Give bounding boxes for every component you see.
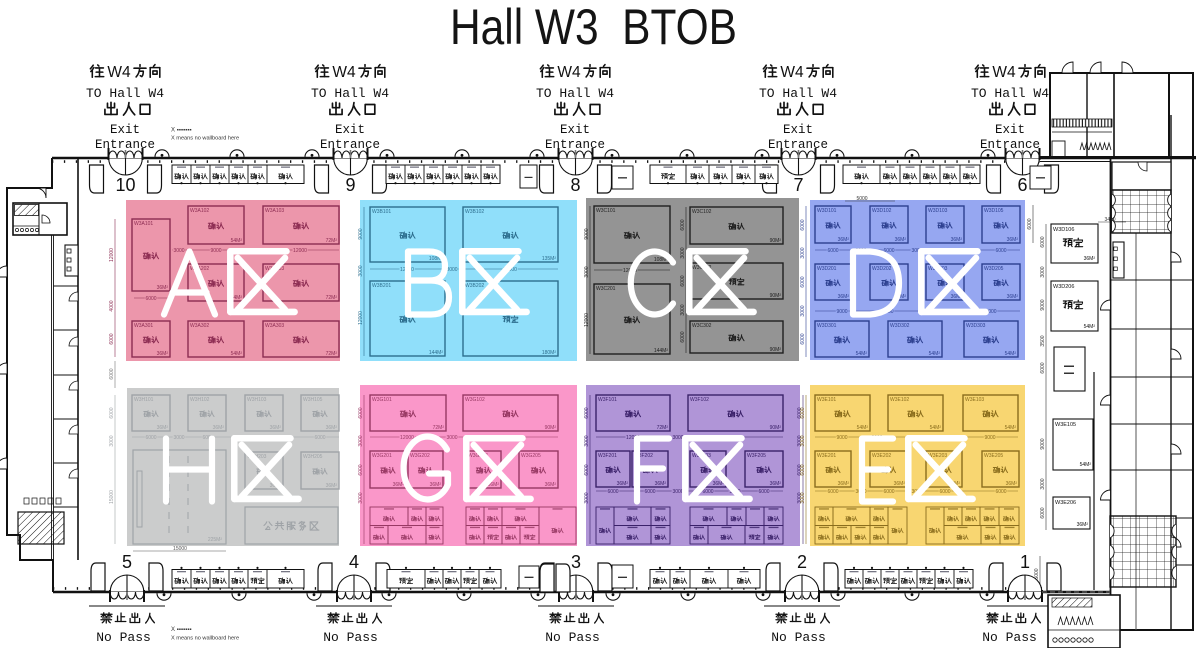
- svg-text:6000: 6000: [584, 407, 590, 418]
- svg-text:36M²: 36M²: [1007, 294, 1019, 300]
- svg-text:36M²: 36M²: [326, 425, 338, 431]
- svg-text:3000: 3000: [1040, 478, 1046, 489]
- svg-text:W3E105: W3E105: [1055, 422, 1076, 428]
- svg-text:6000: 6000: [680, 331, 686, 342]
- svg-text:Exit: Exit: [995, 123, 1025, 137]
- svg-text:TO Hall W4: TO Hall W4: [86, 86, 164, 101]
- svg-text:Entrance: Entrance: [545, 138, 605, 152]
- svg-text:6000: 6000: [883, 489, 894, 495]
- svg-text:X ▪▪▪▪▪▪▪: X ▪▪▪▪▪▪▪: [171, 627, 192, 633]
- svg-text:W3G202: W3G202: [410, 453, 430, 459]
- svg-text:X means no wallboard here: X means no wallboard here: [171, 136, 239, 142]
- svg-text:36M²: 36M²: [1006, 481, 1018, 487]
- svg-text:72M²: 72M²: [657, 425, 669, 431]
- svg-text:W3H101: W3H101: [134, 397, 154, 403]
- svg-text:5000: 5000: [856, 196, 867, 202]
- svg-text:▬▬: ▬▬: [525, 574, 535, 579]
- svg-text:9000: 9000: [1040, 438, 1046, 449]
- svg-text:36M²: 36M²: [1077, 522, 1089, 528]
- svg-text:90M²: 90M²: [770, 347, 782, 353]
- svg-text:36M²: 36M²: [770, 481, 782, 487]
- svg-text:72M²: 72M²: [326, 351, 338, 357]
- svg-text:12000: 12000: [584, 313, 590, 327]
- svg-text:36M²: 36M²: [838, 481, 850, 487]
- svg-text:6000: 6000: [800, 333, 806, 344]
- svg-text:W3C102: W3C102: [692, 209, 712, 215]
- svg-text:3000: 3000: [358, 435, 364, 446]
- svg-text:Exit: Exit: [783, 123, 813, 137]
- svg-text:No Pass: No Pass: [545, 630, 600, 645]
- svg-text:▬▬: ▬▬: [1064, 370, 1074, 376]
- svg-text:W3D303: W3D303: [966, 323, 986, 329]
- svg-text:▬▬: ▬▬: [1036, 175, 1046, 180]
- svg-text:6000: 6000: [109, 407, 115, 418]
- svg-text:225M²: 225M²: [208, 537, 223, 543]
- svg-text:15000: 15000: [109, 490, 115, 504]
- svg-text:3000: 3000: [584, 266, 590, 277]
- svg-text:No Pass: No Pass: [982, 630, 1037, 645]
- svg-text:36M²: 36M²: [895, 237, 907, 243]
- svg-text:36M²: 36M²: [157, 351, 169, 357]
- svg-text:144M²: 144M²: [654, 348, 669, 354]
- svg-text:36M²: 36M²: [655, 481, 667, 487]
- svg-text:15000: 15000: [173, 546, 187, 552]
- svg-text:6000: 6000: [109, 333, 115, 344]
- svg-text:90M²: 90M²: [770, 238, 782, 244]
- svg-text:6000: 6000: [607, 489, 618, 495]
- svg-text:W3B201: W3B201: [372, 283, 391, 289]
- svg-text:54M²: 54M²: [1005, 425, 1017, 431]
- svg-text:6000: 6000: [358, 464, 364, 475]
- svg-text:3000: 3000: [446, 267, 457, 273]
- svg-text:144M²: 144M²: [429, 350, 444, 356]
- svg-text:6000: 6000: [800, 407, 806, 418]
- svg-text:6000: 6000: [584, 464, 590, 475]
- svg-text:6000: 6000: [1040, 236, 1046, 247]
- svg-text:6000: 6000: [800, 276, 806, 287]
- svg-text:36M²: 36M²: [213, 425, 225, 431]
- svg-text:W4: W4: [780, 64, 804, 81]
- svg-text:36M²: 36M²: [326, 483, 338, 489]
- svg-text:W3A302: W3A302: [190, 323, 209, 329]
- svg-text:36M²: 36M²: [1084, 256, 1096, 262]
- svg-text:W3D103: W3D103: [928, 208, 948, 214]
- svg-text:36M²: 36M²: [157, 425, 169, 431]
- svg-text:W3A101: W3A101: [134, 221, 153, 227]
- svg-text:6000: 6000: [800, 464, 806, 475]
- svg-text:6000: 6000: [995, 489, 1006, 495]
- svg-text:36M²: 36M²: [545, 482, 557, 488]
- svg-text:Entrance: Entrance: [320, 138, 380, 152]
- svg-text:X ▪▪▪▪▪▪▪: X ▪▪▪▪▪▪▪: [171, 128, 192, 134]
- svg-text:72M²: 72M²: [433, 425, 445, 431]
- svg-text:W3D105: W3D105: [984, 208, 1004, 214]
- svg-text:3000: 3000: [800, 435, 806, 446]
- svg-text:Entrance: Entrance: [768, 138, 828, 152]
- svg-text:W3A303: W3A303: [265, 323, 284, 329]
- svg-text:36M²: 36M²: [1007, 237, 1019, 243]
- svg-text:W3E103: W3E103: [965, 397, 984, 403]
- svg-text:W3E206: W3E206: [1055, 500, 1076, 506]
- svg-text:W3B102: W3B102: [465, 209, 484, 215]
- svg-text:4: 4: [349, 552, 359, 572]
- svg-text:6000: 6000: [145, 435, 156, 441]
- svg-text:W4: W4: [557, 64, 581, 81]
- svg-text:9000: 9000: [210, 248, 221, 254]
- svg-text:W3D102: W3D102: [872, 208, 892, 214]
- svg-text:3000: 3000: [109, 435, 115, 446]
- svg-text:6000: 6000: [358, 407, 364, 418]
- svg-text:6000: 6000: [827, 248, 838, 254]
- svg-text:9000: 9000: [984, 435, 995, 441]
- svg-text:W3E205: W3E205: [984, 453, 1003, 459]
- svg-text:W3A102: W3A102: [190, 208, 209, 214]
- svg-text:1: 1: [1020, 552, 1030, 572]
- svg-text:W3D106: W3D106: [1053, 227, 1074, 233]
- svg-text:54M²: 54M²: [1080, 462, 1092, 468]
- svg-text:TO Hall W4: TO Hall W4: [311, 86, 389, 101]
- svg-text:W3D101: W3D101: [817, 208, 837, 214]
- svg-text:54M²: 54M²: [231, 351, 243, 357]
- svg-text:W3D205: W3D205: [984, 266, 1004, 272]
- svg-text:No Pass: No Pass: [96, 630, 151, 645]
- svg-text:5: 5: [122, 552, 132, 572]
- svg-text:6000: 6000: [995, 248, 1006, 254]
- svg-text:2: 2: [797, 552, 807, 572]
- svg-text:6000: 6000: [827, 489, 838, 495]
- svg-text:9: 9: [345, 175, 355, 195]
- svg-text:7: 7: [793, 175, 803, 195]
- svg-text:W3D206: W3D206: [1053, 284, 1074, 290]
- svg-text:W3E102: W3E102: [890, 397, 909, 403]
- svg-text:W3B101: W3B101: [372, 209, 391, 215]
- svg-text:No Pass: No Pass: [771, 630, 826, 645]
- svg-text:TO Hall W4: TO Hall W4: [759, 86, 837, 101]
- svg-text:TO Hall W4: TO Hall W4: [536, 86, 614, 101]
- svg-text:9000: 9000: [836, 309, 847, 315]
- svg-text:W3H105: W3H105: [303, 397, 323, 403]
- svg-text:W3E101: W3E101: [817, 397, 836, 403]
- svg-text:12000: 12000: [293, 248, 307, 254]
- svg-text:3000: 3000: [800, 305, 806, 316]
- svg-text:W3G102: W3G102: [465, 397, 485, 403]
- svg-text:36M²: 36M²: [894, 481, 906, 487]
- svg-text:12000: 12000: [109, 248, 115, 262]
- svg-text:3000: 3000: [358, 265, 364, 276]
- svg-text:W3F102: W3F102: [690, 397, 709, 403]
- svg-text:4000: 4000: [109, 300, 115, 311]
- svg-text:W3A301: W3A301: [134, 323, 153, 329]
- svg-text:W3H102: W3H102: [190, 397, 210, 403]
- svg-text:36M²: 36M²: [951, 237, 963, 243]
- svg-text:6000: 6000: [1040, 507, 1046, 518]
- svg-text:3000: 3000: [1040, 266, 1046, 277]
- svg-text:W3D301: W3D301: [817, 323, 837, 329]
- svg-text:Exit: Exit: [560, 123, 590, 137]
- svg-text:6000: 6000: [800, 219, 806, 230]
- svg-text:W3A103: W3A103: [265, 208, 284, 214]
- svg-text:W3B202: W3B202: [465, 283, 484, 289]
- svg-text:9000: 9000: [358, 228, 364, 239]
- svg-text:36M²: 36M²: [838, 237, 850, 243]
- svg-text:6: 6: [1017, 175, 1027, 195]
- svg-text:10: 10: [115, 175, 135, 195]
- svg-text:54M²: 54M²: [930, 425, 942, 431]
- svg-text:180M²: 180M²: [542, 350, 557, 356]
- svg-text:X means no wallboard here: X means no wallboard here: [171, 636, 239, 642]
- svg-text:W3C101: W3C101: [596, 208, 616, 214]
- svg-text:6000: 6000: [702, 489, 713, 495]
- svg-text:3: 3: [571, 552, 581, 572]
- svg-text:▬▬: ▬▬: [1064, 363, 1074, 369]
- svg-text:W3H205: W3H205: [303, 454, 323, 460]
- svg-text:Hall W3 BTOB: Hall W3 BTOB: [450, 0, 737, 55]
- svg-text:36M²: 36M²: [617, 481, 629, 487]
- svg-text:9000: 9000: [584, 228, 590, 239]
- svg-text:54M²: 54M²: [231, 238, 243, 244]
- svg-text:72M²: 72M²: [326, 238, 338, 244]
- svg-text:6000: 6000: [758, 489, 769, 495]
- svg-text:W4: W4: [992, 64, 1016, 81]
- svg-text:36M²: 36M²: [270, 425, 282, 431]
- svg-text:3000: 3000: [584, 435, 590, 446]
- svg-text:▬▬: ▬▬: [618, 175, 628, 180]
- svg-text:9000: 9000: [1040, 299, 1046, 310]
- svg-text:W3F101: W3F101: [598, 397, 617, 403]
- svg-text:6000: 6000: [644, 489, 655, 495]
- svg-text:▬▬: ▬▬: [525, 174, 533, 179]
- svg-text:90M²: 90M²: [770, 425, 782, 431]
- svg-text:Exit: Exit: [110, 123, 140, 137]
- svg-text:6000: 6000: [145, 296, 156, 302]
- svg-text:54M²: 54M²: [1005, 351, 1017, 357]
- svg-text:3000: 3000: [800, 492, 806, 503]
- svg-text:90M²: 90M²: [770, 293, 782, 299]
- svg-text:TO Hall W4: TO Hall W4: [971, 86, 1049, 101]
- svg-text:W3C201: W3C201: [596, 286, 616, 292]
- svg-text:W3C302: W3C302: [692, 323, 712, 329]
- svg-text:▬▬: ▬▬: [618, 574, 628, 579]
- svg-text:54M²: 54M²: [929, 351, 941, 357]
- svg-text:W3E201: W3E201: [817, 453, 836, 459]
- svg-text:3000: 3000: [446, 435, 457, 441]
- svg-text:3000: 3000: [680, 247, 686, 258]
- svg-text:Exit: Exit: [335, 123, 365, 137]
- svg-text:6000: 6000: [314, 435, 325, 441]
- svg-text:72M²: 72M²: [326, 295, 338, 301]
- svg-text:90M²: 90M²: [545, 425, 557, 431]
- svg-text:54M²: 54M²: [856, 351, 868, 357]
- svg-text:3000: 3000: [173, 435, 184, 441]
- svg-text:W3F205: W3F205: [747, 453, 766, 459]
- svg-text:W4: W4: [332, 64, 356, 81]
- svg-text:8: 8: [570, 175, 580, 195]
- svg-text:3000: 3000: [173, 248, 184, 254]
- svg-text:6000: 6000: [109, 368, 115, 379]
- svg-text:W4: W4: [107, 64, 131, 81]
- svg-text:9000: 9000: [836, 435, 847, 441]
- svg-text:6000: 6000: [680, 275, 686, 286]
- svg-text:54M²: 54M²: [857, 425, 869, 431]
- svg-text:No Pass: No Pass: [323, 630, 378, 645]
- svg-text:W3G205: W3G205: [521, 453, 541, 459]
- svg-text:W3D202: W3D202: [872, 266, 892, 272]
- svg-text:W3D201: W3D201: [817, 266, 837, 272]
- svg-text:36M²: 36M²: [838, 294, 850, 300]
- svg-text:54M²: 54M²: [1084, 324, 1096, 330]
- svg-text:W3H103: W3H103: [247, 397, 267, 403]
- svg-text:3500: 3500: [1040, 335, 1046, 346]
- svg-text:36M²: 36M²: [393, 482, 405, 488]
- svg-text:3000: 3000: [584, 492, 590, 503]
- svg-text:6000: 6000: [939, 489, 950, 495]
- svg-text:6000: 6000: [1040, 362, 1046, 373]
- svg-text:3000: 3000: [800, 247, 806, 258]
- svg-text:W3D302: W3D302: [890, 323, 910, 329]
- svg-text:3000: 3000: [358, 492, 364, 503]
- svg-text:W3E202: W3E202: [872, 453, 891, 459]
- svg-text:6000: 6000: [1027, 218, 1033, 229]
- svg-text:36M²: 36M²: [430, 482, 442, 488]
- svg-text:135M²: 135M²: [542, 256, 557, 262]
- svg-text:3000: 3000: [680, 304, 686, 315]
- svg-text:6000: 6000: [680, 219, 686, 230]
- svg-text:36M²: 36M²: [157, 285, 169, 291]
- svg-text:W3G201: W3G201: [372, 453, 392, 459]
- svg-text:Entrance: Entrance: [95, 138, 155, 152]
- svg-text:W3F201: W3F201: [598, 453, 617, 459]
- svg-text:W3G101: W3G101: [372, 397, 392, 403]
- svg-text:12000: 12000: [358, 311, 364, 325]
